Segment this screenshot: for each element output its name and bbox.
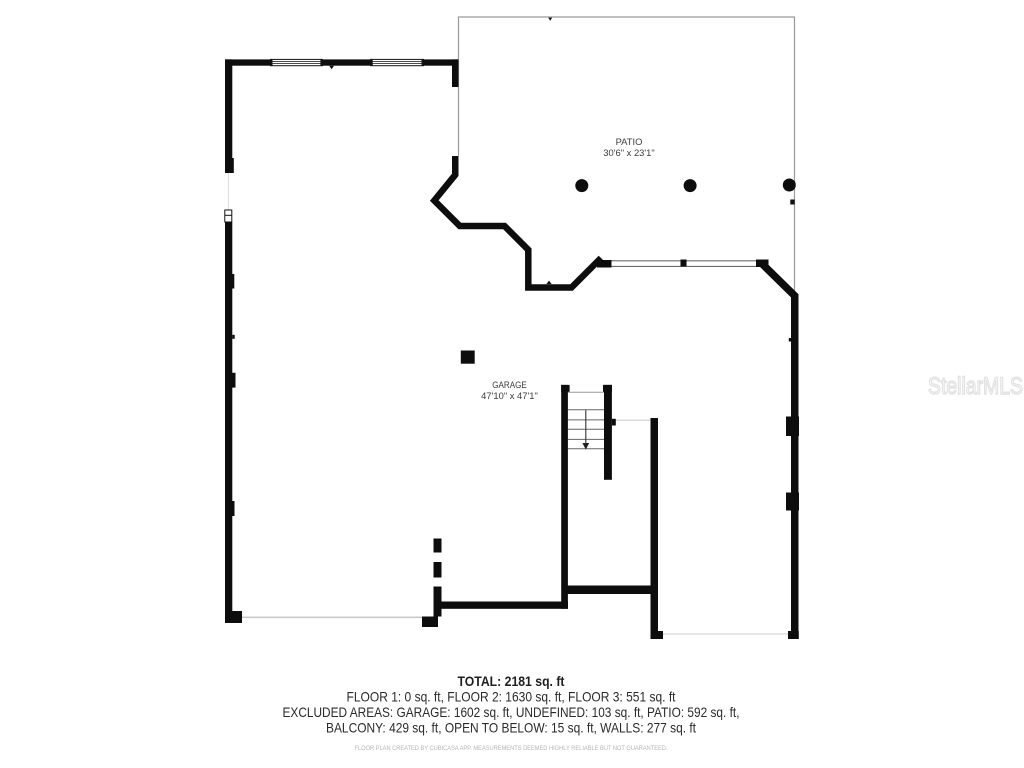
svg-text:GARAGE: GARAGE: [492, 379, 527, 390]
svg-text:30'6" x 23'1": 30'6" x 23'1": [603, 147, 654, 158]
svg-text:FLOOR PLAN CREATED BY CUBICASA: FLOOR PLAN CREATED BY CUBICASA APP. MEAS…: [355, 745, 668, 752]
svg-text:PATIO: PATIO: [616, 136, 643, 147]
svg-text:FLOOR 1: 0 sq. ft, FLOOR 2: 16: FLOOR 1: 0 sq. ft, FLOOR 2: 1630 sq. ft,…: [347, 690, 676, 705]
svg-text:BALCONY: 429 sq. ft, OPEN TO B: BALCONY: 429 sq. ft, OPEN TO BELOW: 15 s…: [326, 721, 696, 736]
svg-text:StellarMLS: StellarMLS: [928, 373, 1023, 400]
svg-text:EXCLUDED AREAS: GARAGE: 1602 s: EXCLUDED AREAS: GARAGE: 1602 sq. ft, UND…: [283, 705, 740, 720]
svg-text:47'10" x 47'1": 47'10" x 47'1": [481, 390, 538, 401]
svg-text:TOTAL: 2181 sq. ft: TOTAL: 2181 sq. ft: [458, 674, 565, 689]
